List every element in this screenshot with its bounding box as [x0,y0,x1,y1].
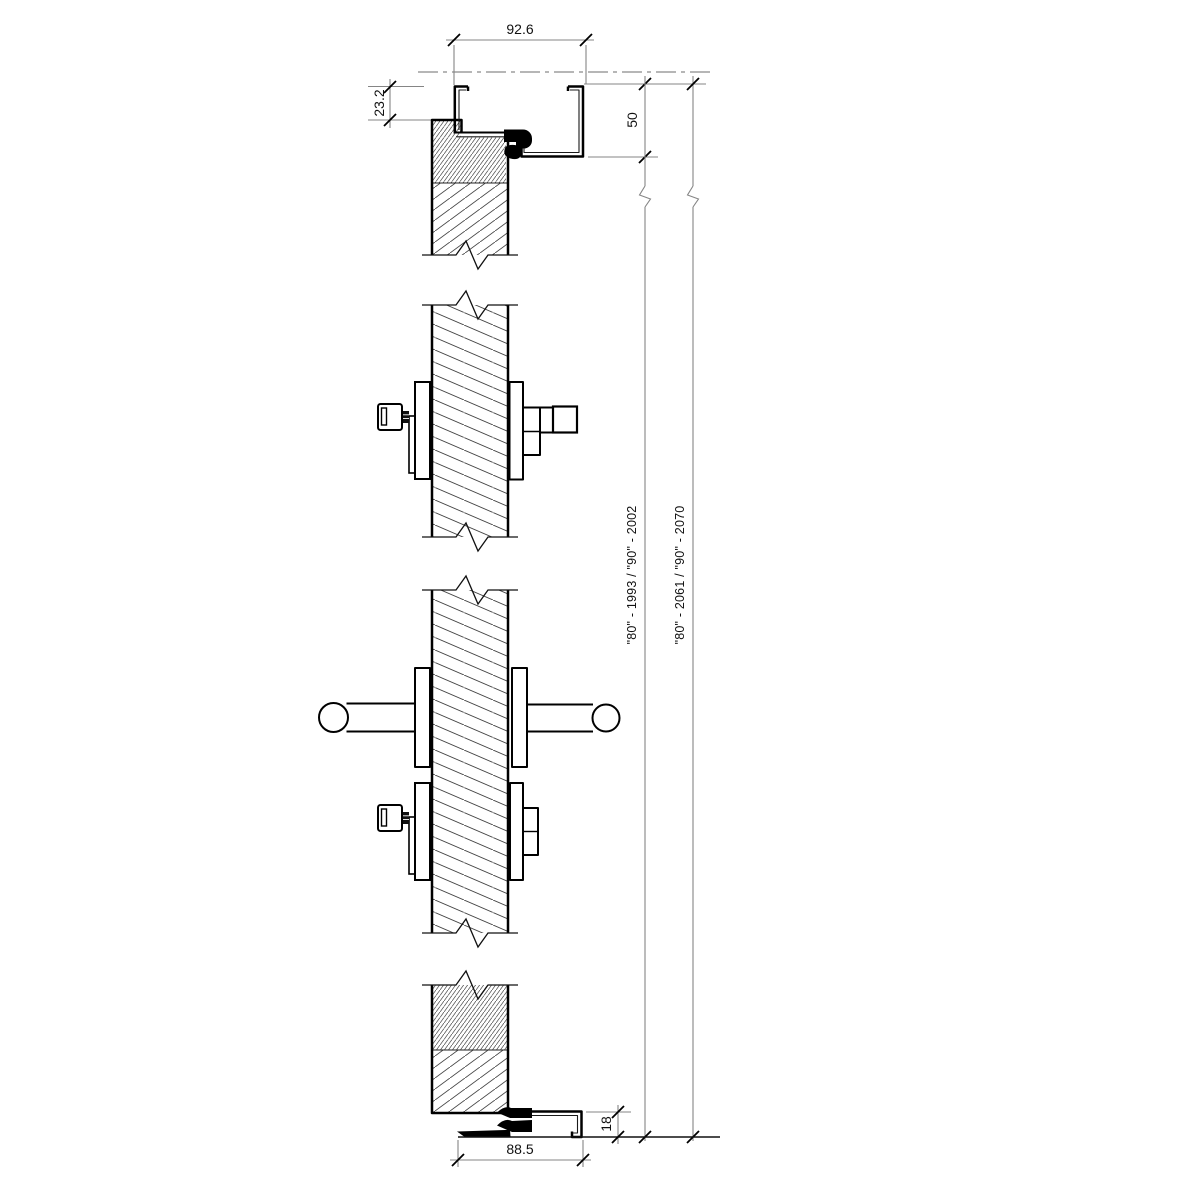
lever-handle-right-end [593,705,620,732]
cylinder-thumbturn [553,407,577,433]
dim-frame-overlap: 23.2 [371,89,387,116]
door-section-drawing: 92.6 23.2 50 "80" - 1993 / "90" - 2002 "… [0,0,1200,1200]
drawing-page: 92.6 23.2 50 "80" - 1993 / "90" - 2002 "… [0,0,1200,1200]
door-leaf-core-hatch [432,1050,507,1113]
cylinder-neck [540,408,553,433]
door-leaf-hatch [432,305,508,537]
lever-handle-left-end [319,703,348,732]
dim-threshold-width: 88.5 [506,1141,533,1157]
dim-frame-head-width: 92.6 [506,21,533,37]
handle-rosette-right [512,668,527,767]
canvas-background [0,0,1200,1200]
dim-frame-head-height: 50 [624,112,640,128]
door-leaf-edge-hatch [432,985,507,1050]
lock-plate [510,783,523,880]
door-leaf-hatch [432,590,508,933]
handle-rosette-left [415,668,430,767]
dim-frame-total-height-label: "80" - 2061 / "90" - 2070 [673,506,687,645]
dim-threshold-height: 18 [598,1116,614,1132]
dim-door-height-label: "80" - 1993 / "90" - 2002 [625,506,639,645]
door-leaf-core-hatch [432,183,507,255]
lock-plate [510,382,524,480]
